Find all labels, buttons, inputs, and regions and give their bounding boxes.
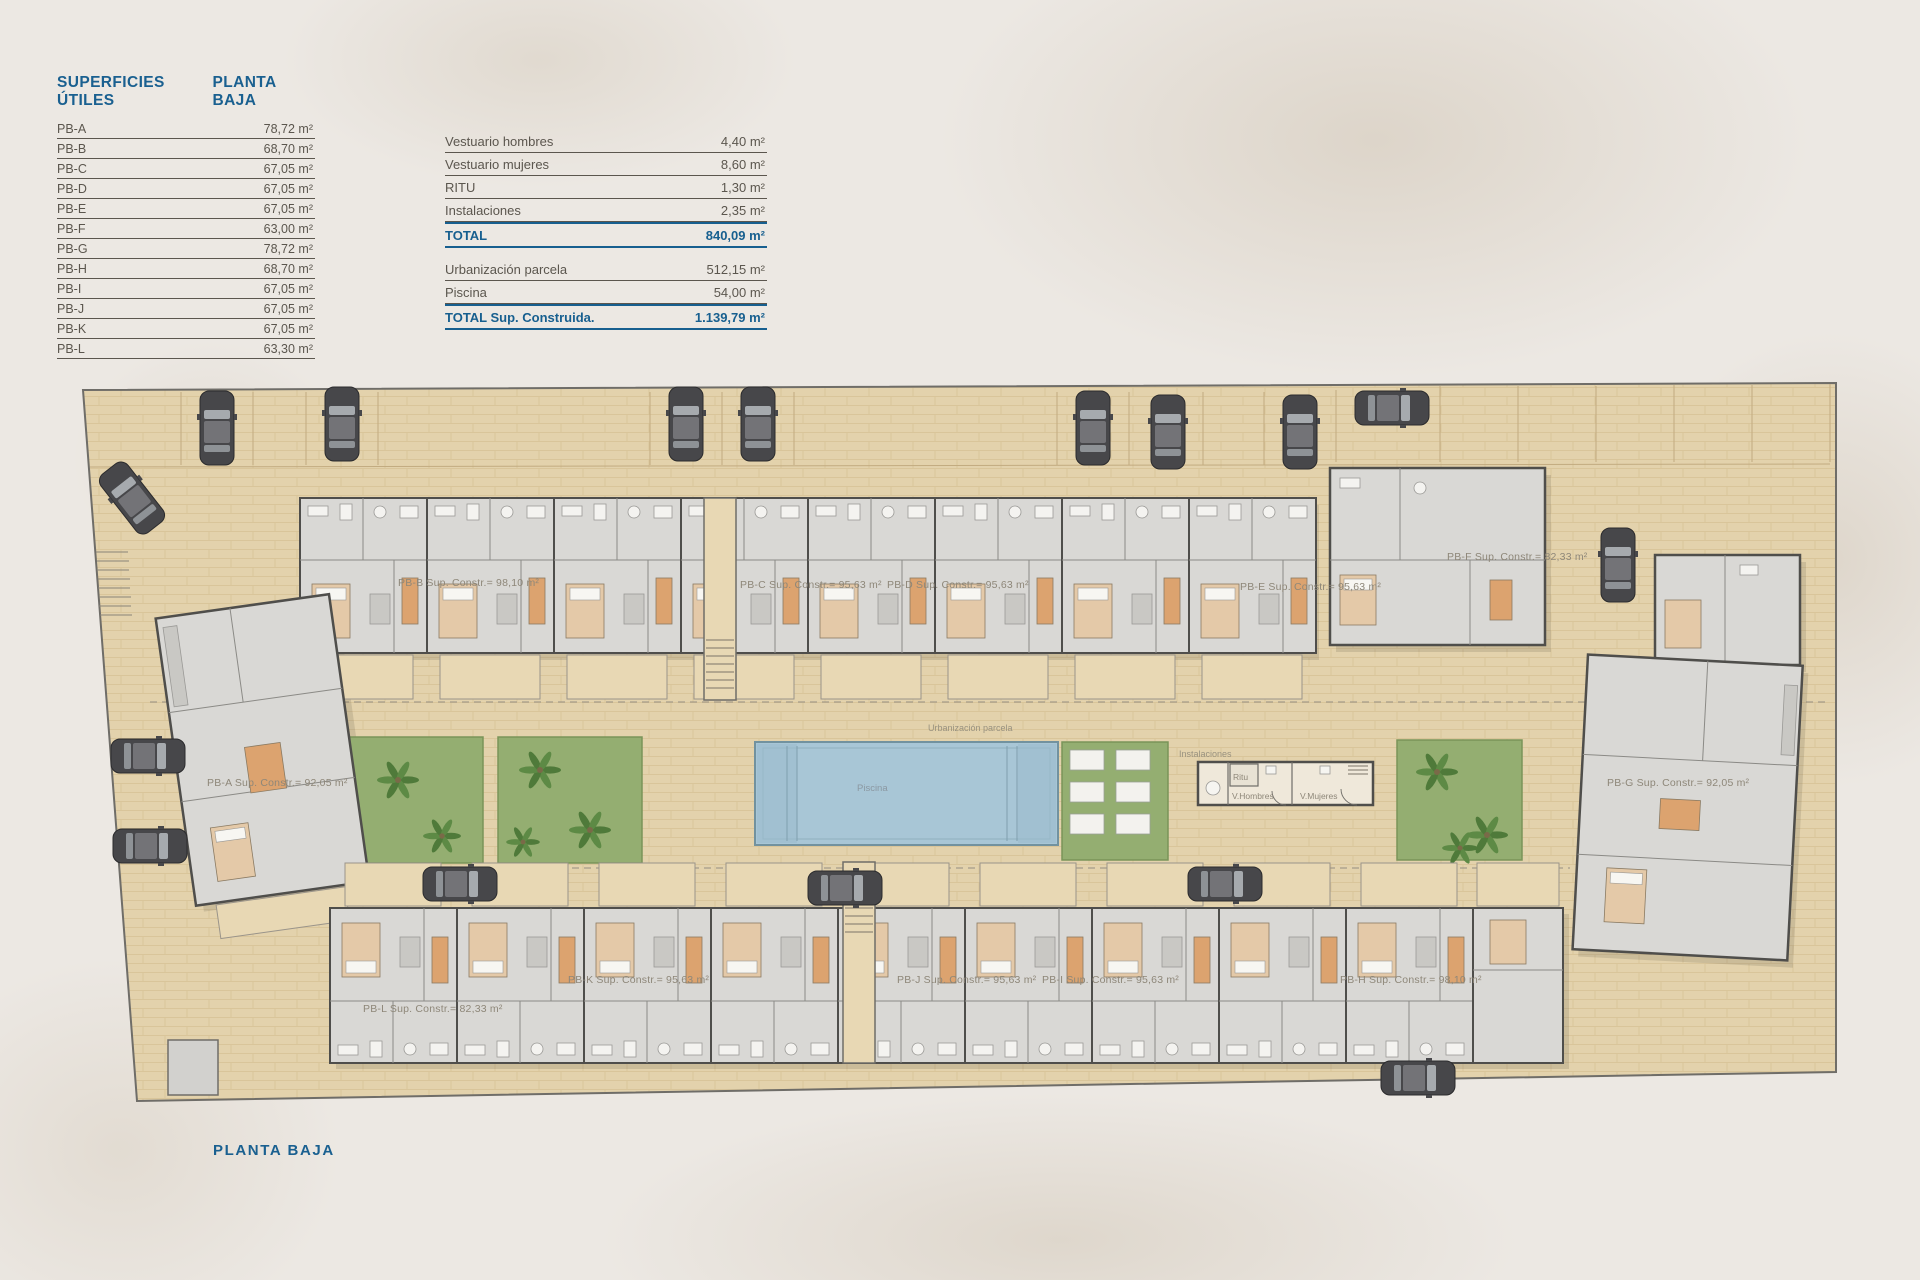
row-pb-g: PB-G78,72 m² — [57, 239, 315, 259]
unit-label-pb-l: PB-L Sup. Constr.= 82,33 m² — [363, 1003, 503, 1015]
row-pb-b: PB-B68,70 m² — [57, 139, 315, 159]
row-pb-i: PB-I67,05 m² — [57, 279, 315, 299]
label-instalaciones: Instalaciones — [1179, 749, 1232, 759]
row-urbanizacion-parcela: Urbanización parcela512,15 m² — [445, 258, 767, 281]
building-right-wing — [1655, 555, 1800, 665]
parked-car-icon — [197, 391, 237, 465]
useful-areas-title: SUPERFICIES ÚTILES — [57, 74, 213, 110]
label-piscina: Piscina — [857, 783, 888, 794]
label-v-hombres: V.Hombres — [1232, 791, 1274, 801]
row-ritu: RITU1,30 m² — [445, 176, 767, 199]
unit-label-pb-f: PB-F Sup. Constr.= 82,33 m² — [1447, 551, 1588, 563]
parked-car-icon — [808, 868, 882, 908]
site-table: Urbanización parcela512,15 m² Piscina54,… — [445, 258, 767, 330]
unit-label-pb-e: PB-E Sup. Constr.= 95,63 m² — [1240, 581, 1381, 593]
row-pb-a: PB-A78,72 m² — [57, 119, 315, 139]
plan-sheet: PB-B Sup. Constr.= 98,10 m² PB-C Sup. Co… — [0, 0, 1920, 1280]
row-pb-f: PB-F63,00 m² — [57, 219, 315, 239]
unit-label-pb-k: PB-K Sup. Constr.= 95,63 m² — [568, 974, 709, 986]
row-piscina: Piscina54,00 m² — [445, 281, 767, 304]
facilities-building — [1198, 762, 1373, 805]
unit-label-pb-h: PB-H Sup. Constr.= 98,10 m² — [1340, 974, 1482, 986]
row-pb-j: PB-J67,05 m² — [57, 299, 315, 319]
label-urbanizacion-parcela: Urbanización parcela — [928, 723, 1013, 733]
parked-car-icon — [111, 736, 185, 776]
parked-car-icon — [1598, 528, 1638, 602]
parked-car-icon — [322, 387, 362, 461]
useful-areas-header: SUPERFICIES ÚTILES PLANTA BAJA — [57, 74, 315, 110]
parked-car-icon — [113, 826, 187, 866]
row-pb-k: PB-K67,05 m² — [57, 319, 315, 339]
unit-label-pb-j: PB-J Sup. Constr.= 95,63 m² — [897, 974, 1037, 986]
label-ritu: Ritu — [1233, 772, 1248, 782]
row-vestuario-mujeres: Vestuario mujeres8,60 m² — [445, 153, 767, 176]
parked-car-icon — [423, 864, 497, 904]
unit-label-pb-a: PB-A Sup. Constr.= 92,05 m² — [207, 777, 348, 789]
unit-label-pb-c: PB-C Sup. Constr.= 95,63 m² — [740, 579, 882, 591]
row-pb-l: PB-L63,30 m² — [57, 339, 315, 359]
row-instalaciones: Instalaciones2,35 m² — [445, 199, 767, 222]
row-pb-h: PB-H68,70 m² — [57, 259, 315, 279]
useful-areas-table: SUPERFICIES ÚTILES PLANTA BAJA PB-A78,72… — [57, 74, 315, 359]
parked-car-icon — [1381, 1058, 1455, 1098]
parked-car-icon — [1073, 391, 1113, 465]
parked-car-icon — [738, 387, 778, 461]
building-top-strip — [300, 498, 1316, 653]
label-v-mujeres: V.Mujeres — [1300, 791, 1337, 801]
row-pb-c: PB-C67,05 m² — [57, 159, 315, 179]
stair-passage-top — [704, 498, 736, 700]
useful-areas-subtitle: PLANTA BAJA — [213, 74, 316, 110]
unit-label-pb-d: PB-D Sup. Constr.= 95,63 m² — [887, 579, 1029, 591]
row-vestuario-hombres: Vestuario hombres4,40 m² — [445, 130, 767, 153]
row-pb-e: PB-E67,05 m² — [57, 199, 315, 219]
parked-car-icon — [1280, 395, 1320, 469]
parked-car-icon — [1148, 395, 1188, 469]
services-table: Vestuario hombres4,40 m² Vestuario mujer… — [445, 130, 767, 248]
building-pb-g — [1573, 655, 1803, 961]
parked-car-icon — [1188, 864, 1262, 904]
parked-car-icon — [666, 387, 706, 461]
unit-label-pb-i: PB-I Sup. Constr.= 95,63 m² — [1042, 974, 1179, 986]
row-total-useful: TOTAL840,09 m² — [445, 222, 767, 248]
storage-box — [168, 1040, 218, 1095]
parked-car-icon — [1355, 388, 1429, 428]
unit-label-pb-g: PB-G Sup. Constr.= 92,05 m² — [1607, 777, 1750, 789]
unit-label-pb-b: PB-B Sup. Constr.= 98,10 m² — [398, 577, 539, 589]
plan-title: PLANTA BAJA — [213, 1142, 335, 1159]
swimming-pool — [755, 742, 1058, 845]
row-pb-d: PB-D67,05 m² — [57, 179, 315, 199]
row-total-constructed: TOTAL Sup. Construida.1.139,79 m² — [445, 304, 767, 330]
